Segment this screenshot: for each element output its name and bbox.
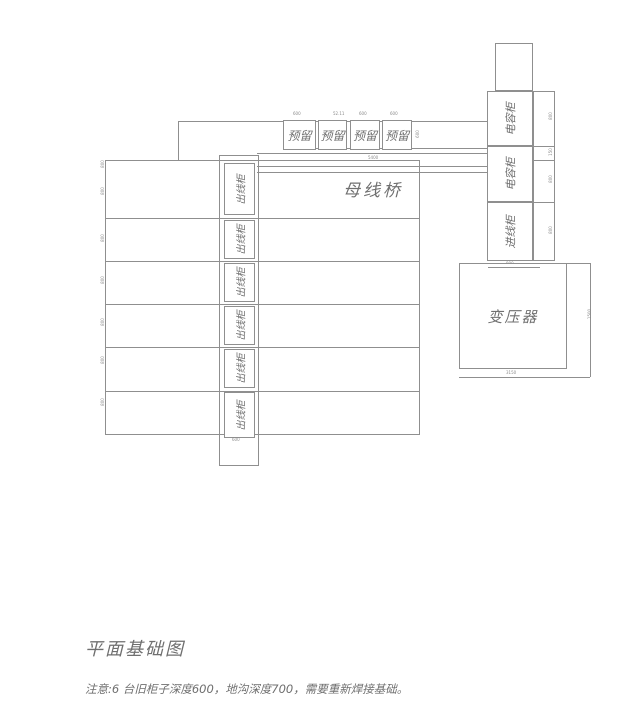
outgoing-cabinet-box: 出线柜 <box>224 306 255 345</box>
reserved-box: 预留 <box>318 120 347 150</box>
reserved-label: 预留 <box>287 127 311 144</box>
transformer-right-dim-line <box>590 263 591 377</box>
dim-label: 800 <box>549 112 553 120</box>
dim-label: 800 <box>101 276 105 284</box>
dim-cell-line <box>534 202 554 203</box>
outgoing-cabinet-box: 出线柜 <box>224 392 255 438</box>
busbar-bridge-label: 母线桥 <box>343 176 403 201</box>
dim-label: 800 <box>101 187 105 195</box>
dim-label: 52.11 <box>333 112 344 116</box>
dim-label: 150 <box>549 148 553 156</box>
outgoing-cabinet-box: 出线柜 <box>224 349 255 388</box>
capacitor-cabinet-label: 电容柜 <box>502 158 518 191</box>
outgoing-cabinet-label: 出线柜 <box>232 354 247 384</box>
dim-cell-line <box>534 160 554 161</box>
drawing-note: 注意:6 台旧柜子深度600，地沟深度700，需要重新焊接基础。 <box>85 681 408 697</box>
outgoing-cabinet-box: 出线柜 <box>224 163 255 215</box>
foundation-grid <box>105 160 420 435</box>
outgoing-cabinet-label: 出线柜 <box>232 174 247 204</box>
dim-label: 600 <box>390 112 398 116</box>
outgoing-cabinet-box: 出线柜 <box>224 220 255 259</box>
reserved-label: 预留 <box>385 127 409 144</box>
outgoing-cabinet-label: 出线柜 <box>232 268 247 298</box>
capacitor-cabinet-label: 电容柜 <box>502 102 518 135</box>
outgoing-cabinet-label: 出线柜 <box>232 311 247 341</box>
transformer-box: 变压器 <box>459 263 567 369</box>
transformer-top-bracket <box>488 267 540 268</box>
busbar-riser-line <box>178 121 179 160</box>
reserved-label: 预留 <box>353 127 377 144</box>
dim-label: 800 <box>101 234 105 242</box>
transformer-bottom-dim-line <box>459 377 590 378</box>
dim-label: 600 <box>359 112 367 116</box>
reserved-box: 预留 <box>283 120 316 150</box>
dim-label: 800 <box>101 356 105 364</box>
transformer-ext-line <box>567 263 590 264</box>
grid-row-line <box>106 218 419 219</box>
outgoing-cabinet-label: 出线柜 <box>232 400 247 430</box>
dim-label: 1500 <box>588 309 592 319</box>
dim-label: 3150 <box>506 371 516 375</box>
dim-label: 600 <box>416 130 420 138</box>
outgoing-cabinet-box: 出线柜 <box>224 263 255 302</box>
dim-label: 800 <box>549 175 553 183</box>
grid-row-line <box>106 304 419 305</box>
dim-label: 600 <box>293 112 301 116</box>
incoming-cabinet-box: 进线柜 <box>487 202 533 261</box>
grid-row-line <box>106 347 419 348</box>
incoming-cabinet-label: 进线柜 <box>502 215 518 248</box>
dim-label: 800 <box>549 226 553 234</box>
dim-label: 600 <box>232 438 240 442</box>
transformer-label: 变压器 <box>487 306 538 327</box>
dim-label: 800 <box>101 398 105 406</box>
dim-label: 800 <box>101 318 105 326</box>
grid-row-line <box>106 391 419 392</box>
reserved-box: 预留 <box>350 120 380 150</box>
grid-row-line <box>106 261 419 262</box>
capacitor-cabinet-box: 电容柜 <box>487 91 533 146</box>
top-duct-box <box>495 43 533 91</box>
reserved-box: 预留 <box>382 120 412 150</box>
reserved-label: 预留 <box>320 127 344 144</box>
capacitor-cabinet-box: 电容柜 <box>487 146 533 202</box>
busbar-line <box>257 153 488 154</box>
cad-drawing-canvas: 800 800 800 800 800 800 800 出线柜 出线柜 出线柜 … <box>0 0 644 721</box>
drawing-title: 平面基础图 <box>85 635 185 661</box>
dim-label: 800 <box>101 160 105 168</box>
outgoing-cabinet-label: 出线柜 <box>232 225 247 255</box>
dim-label: 5400 <box>368 156 378 160</box>
